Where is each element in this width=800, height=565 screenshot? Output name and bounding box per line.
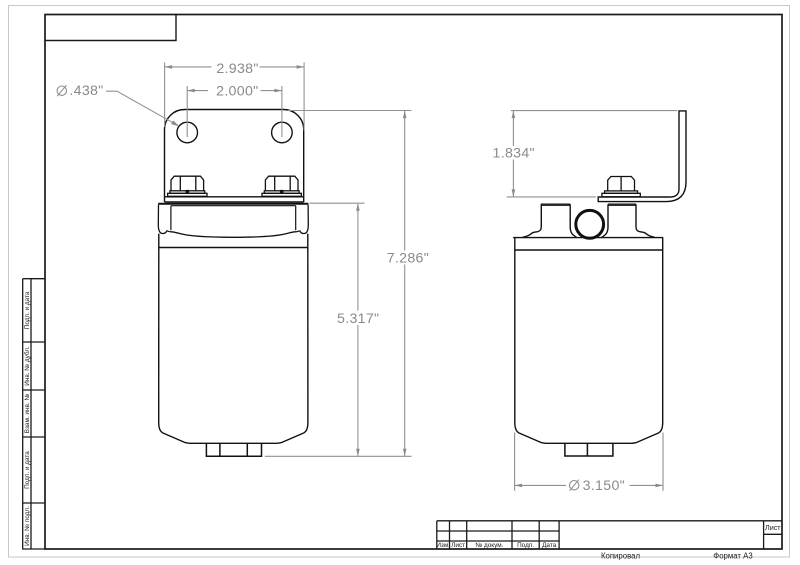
svg-text:Инв. № дубл.: Инв. № дубл. [23,346,31,386]
svg-text:2.000": 2.000" [216,84,258,100]
svg-text:Взам. инв. №: Взам. инв. № [24,394,31,434]
svg-text:2.938": 2.938" [216,61,258,77]
svg-text:Лист: Лист [451,542,465,549]
svg-text:5.317": 5.317" [337,311,379,327]
svg-text:3.150": 3.150" [583,478,625,494]
svg-text:.438": .438" [69,83,103,99]
svg-text:№ докум.: № докум. [475,542,503,549]
svg-text:Дата: Дата [542,542,557,549]
svg-text:Формат А3: Формат А3 [713,552,752,561]
svg-text:Лист: Лист [765,523,781,532]
svg-text:7.286": 7.286" [387,250,429,266]
svg-text:Копировал: Копировал [601,552,641,561]
svg-text:Инв. № подл.: Инв. № подл. [24,506,31,546]
svg-text:1.834": 1.834" [493,145,535,161]
svg-text:Подп.: Подп. [517,542,534,549]
svg-text:Изм.: Изм. [436,542,450,549]
svg-text:Подп. и дата: Подп. и дата [24,451,31,489]
svg-text:Подп. и дата: Подп. и дата [24,291,31,329]
